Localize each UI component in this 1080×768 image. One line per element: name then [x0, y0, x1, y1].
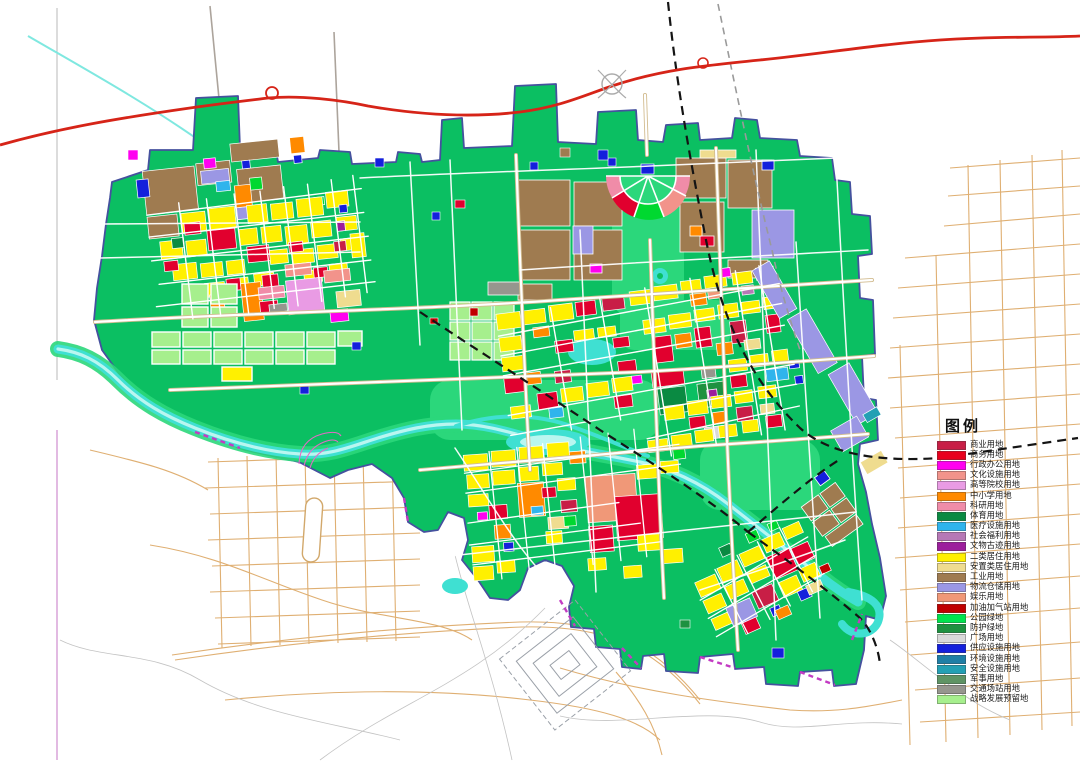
legend-color-swatch — [937, 522, 966, 531]
legend-color-swatch — [937, 553, 966, 562]
legend-item-label: 科研用地 — [970, 502, 1003, 511]
legend-item-label: 体育用地 — [970, 512, 1003, 521]
legend-item-label: 战略发展预留地 — [970, 695, 1028, 704]
legend-row: 物流仓储用地 — [937, 583, 1079, 593]
legend-item-label: 安全设施用地 — [970, 665, 1020, 674]
legend-row: 环境设施用地 — [937, 654, 1079, 664]
legend-row: 公园绿地 — [937, 613, 1079, 623]
legend-color-swatch — [937, 573, 966, 582]
legend-item-label: 环境设施用地 — [970, 655, 1020, 664]
legend-row: 高等院校用地 — [937, 481, 1079, 491]
legend-item-label: 高等院校用地 — [970, 481, 1020, 490]
legend: 图例 商业用地商务用地行政办公用地文化设施用地高等院校用地中小学用地科研用地体育… — [937, 415, 1079, 705]
legend-title: 图例 — [945, 415, 1079, 436]
legend-color-swatch — [937, 441, 966, 450]
legend-item-label: 工业用地 — [970, 573, 1003, 582]
legend-color-swatch — [937, 512, 966, 521]
legend-row: 加油加气站用地 — [937, 603, 1079, 613]
legend-row: 中小学用地 — [937, 491, 1079, 501]
legend-item-label: 广场用地 — [970, 634, 1003, 643]
legend-item-label: 娱乐用地 — [970, 593, 1003, 602]
stadium-oval — [302, 498, 323, 563]
legend-item-label: 社会福利用地 — [970, 532, 1020, 541]
legend-row: 文物古迹用地 — [937, 542, 1079, 552]
legend-color-swatch — [937, 542, 966, 551]
legend-item-label: 文化设施用地 — [970, 471, 1020, 480]
legend-color-swatch — [937, 563, 966, 572]
legend-item-label: 交通场站用地 — [970, 685, 1020, 694]
legend-item-label: 中小学用地 — [970, 492, 1012, 501]
legend-row: 安全设施用地 — [937, 664, 1079, 674]
legend-color-swatch — [937, 593, 966, 602]
legend-item-label: 安置类居住用地 — [970, 563, 1028, 572]
legend-row: 供应设施用地 — [937, 644, 1079, 654]
legend-item-label: 物流仓储用地 — [970, 583, 1020, 592]
legend-row: 体育用地 — [937, 511, 1079, 521]
legend-color-swatch — [937, 655, 966, 664]
legend-color-swatch — [937, 644, 966, 653]
legend-color-swatch — [937, 685, 966, 694]
legend-row: 安置类居住用地 — [937, 562, 1079, 572]
legend-color-swatch — [937, 695, 966, 704]
legend-color-swatch — [937, 624, 966, 633]
legend-color-swatch — [937, 583, 966, 592]
legend-color-swatch — [937, 604, 966, 613]
legend-row: 二类居住用地 — [937, 552, 1079, 562]
planning-map-canvas — [0, 0, 1080, 764]
legend-item-label: 防护绿地 — [970, 624, 1003, 633]
legend-color-swatch — [937, 492, 966, 501]
legend-row: 商业用地 — [937, 440, 1079, 450]
legend-item-label: 供应设施用地 — [970, 644, 1020, 653]
legend-color-swatch — [937, 451, 966, 460]
legend-items: 商业用地商务用地行政办公用地文化设施用地高等院校用地中小学用地科研用地体育用地医… — [937, 440, 1079, 705]
legend-color-swatch — [937, 634, 966, 643]
legend-item-label: 行政办公用地 — [970, 461, 1020, 470]
legend-color-swatch — [937, 502, 966, 511]
land-use-map — [0, 0, 1080, 764]
legend-color-swatch — [937, 675, 966, 684]
legend-color-swatch — [937, 532, 966, 541]
legend-item-label: 二类居住用地 — [970, 553, 1020, 562]
legend-color-swatch — [937, 665, 966, 674]
legend-row: 行政办公用地 — [937, 460, 1079, 470]
legend-row: 军事用地 — [937, 674, 1079, 684]
legend-item-label: 文物古迹用地 — [970, 543, 1020, 552]
legend-row: 科研用地 — [937, 501, 1079, 511]
legend-item-label: 加油加气站用地 — [970, 604, 1028, 613]
legend-item-label: 医疗设施用地 — [970, 522, 1020, 531]
legend-color-swatch — [937, 471, 966, 480]
legend-row: 战略发展预留地 — [937, 695, 1079, 705]
legend-row: 商务用地 — [937, 450, 1079, 460]
legend-item-label: 公园绿地 — [970, 614, 1003, 623]
legend-color-swatch — [937, 481, 966, 490]
legend-row: 防护绿地 — [937, 623, 1079, 633]
legend-color-swatch — [937, 614, 966, 623]
legend-item-label: 商务用地 — [970, 451, 1003, 460]
legend-row: 工业用地 — [937, 572, 1079, 582]
legend-item-label: 商业用地 — [970, 441, 1003, 450]
legend-row: 娱乐用地 — [937, 593, 1079, 603]
legend-item-label: 军事用地 — [970, 675, 1003, 684]
legend-color-swatch — [937, 461, 966, 470]
